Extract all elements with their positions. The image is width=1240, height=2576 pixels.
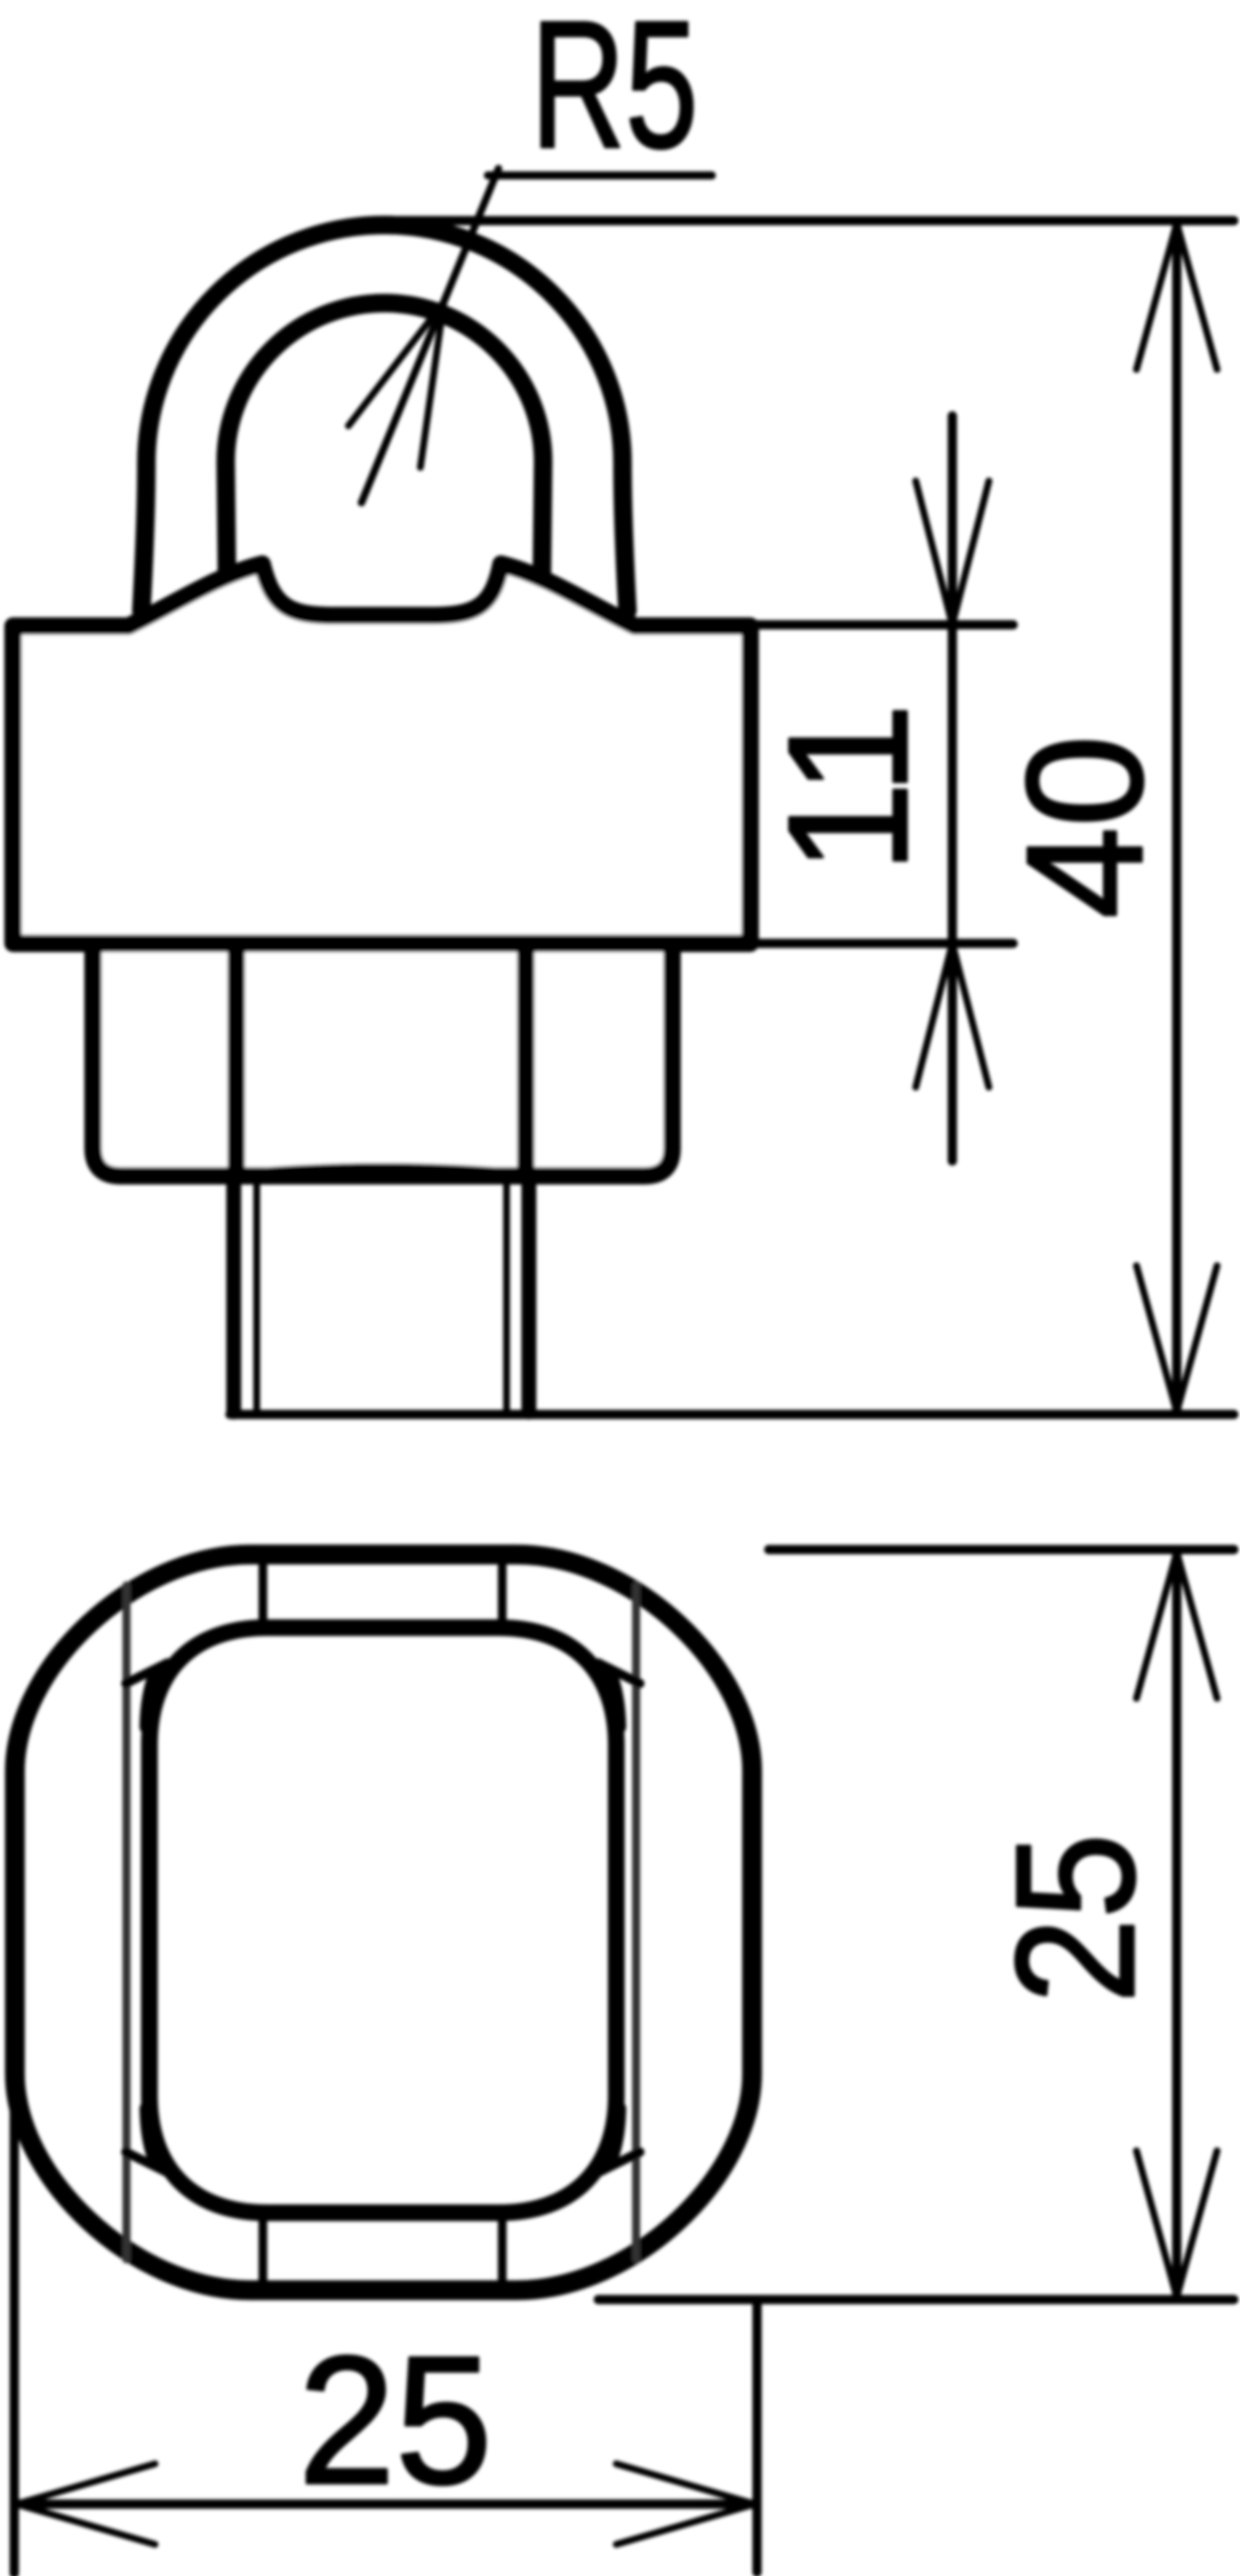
svg-text:25: 25 (981, 1833, 1169, 2003)
svg-text:11: 11 (753, 704, 943, 873)
svg-text:R5: R5 (531, 0, 698, 185)
svg-text:40: 40 (993, 735, 1177, 919)
svg-text:25: 25 (298, 2319, 492, 2522)
